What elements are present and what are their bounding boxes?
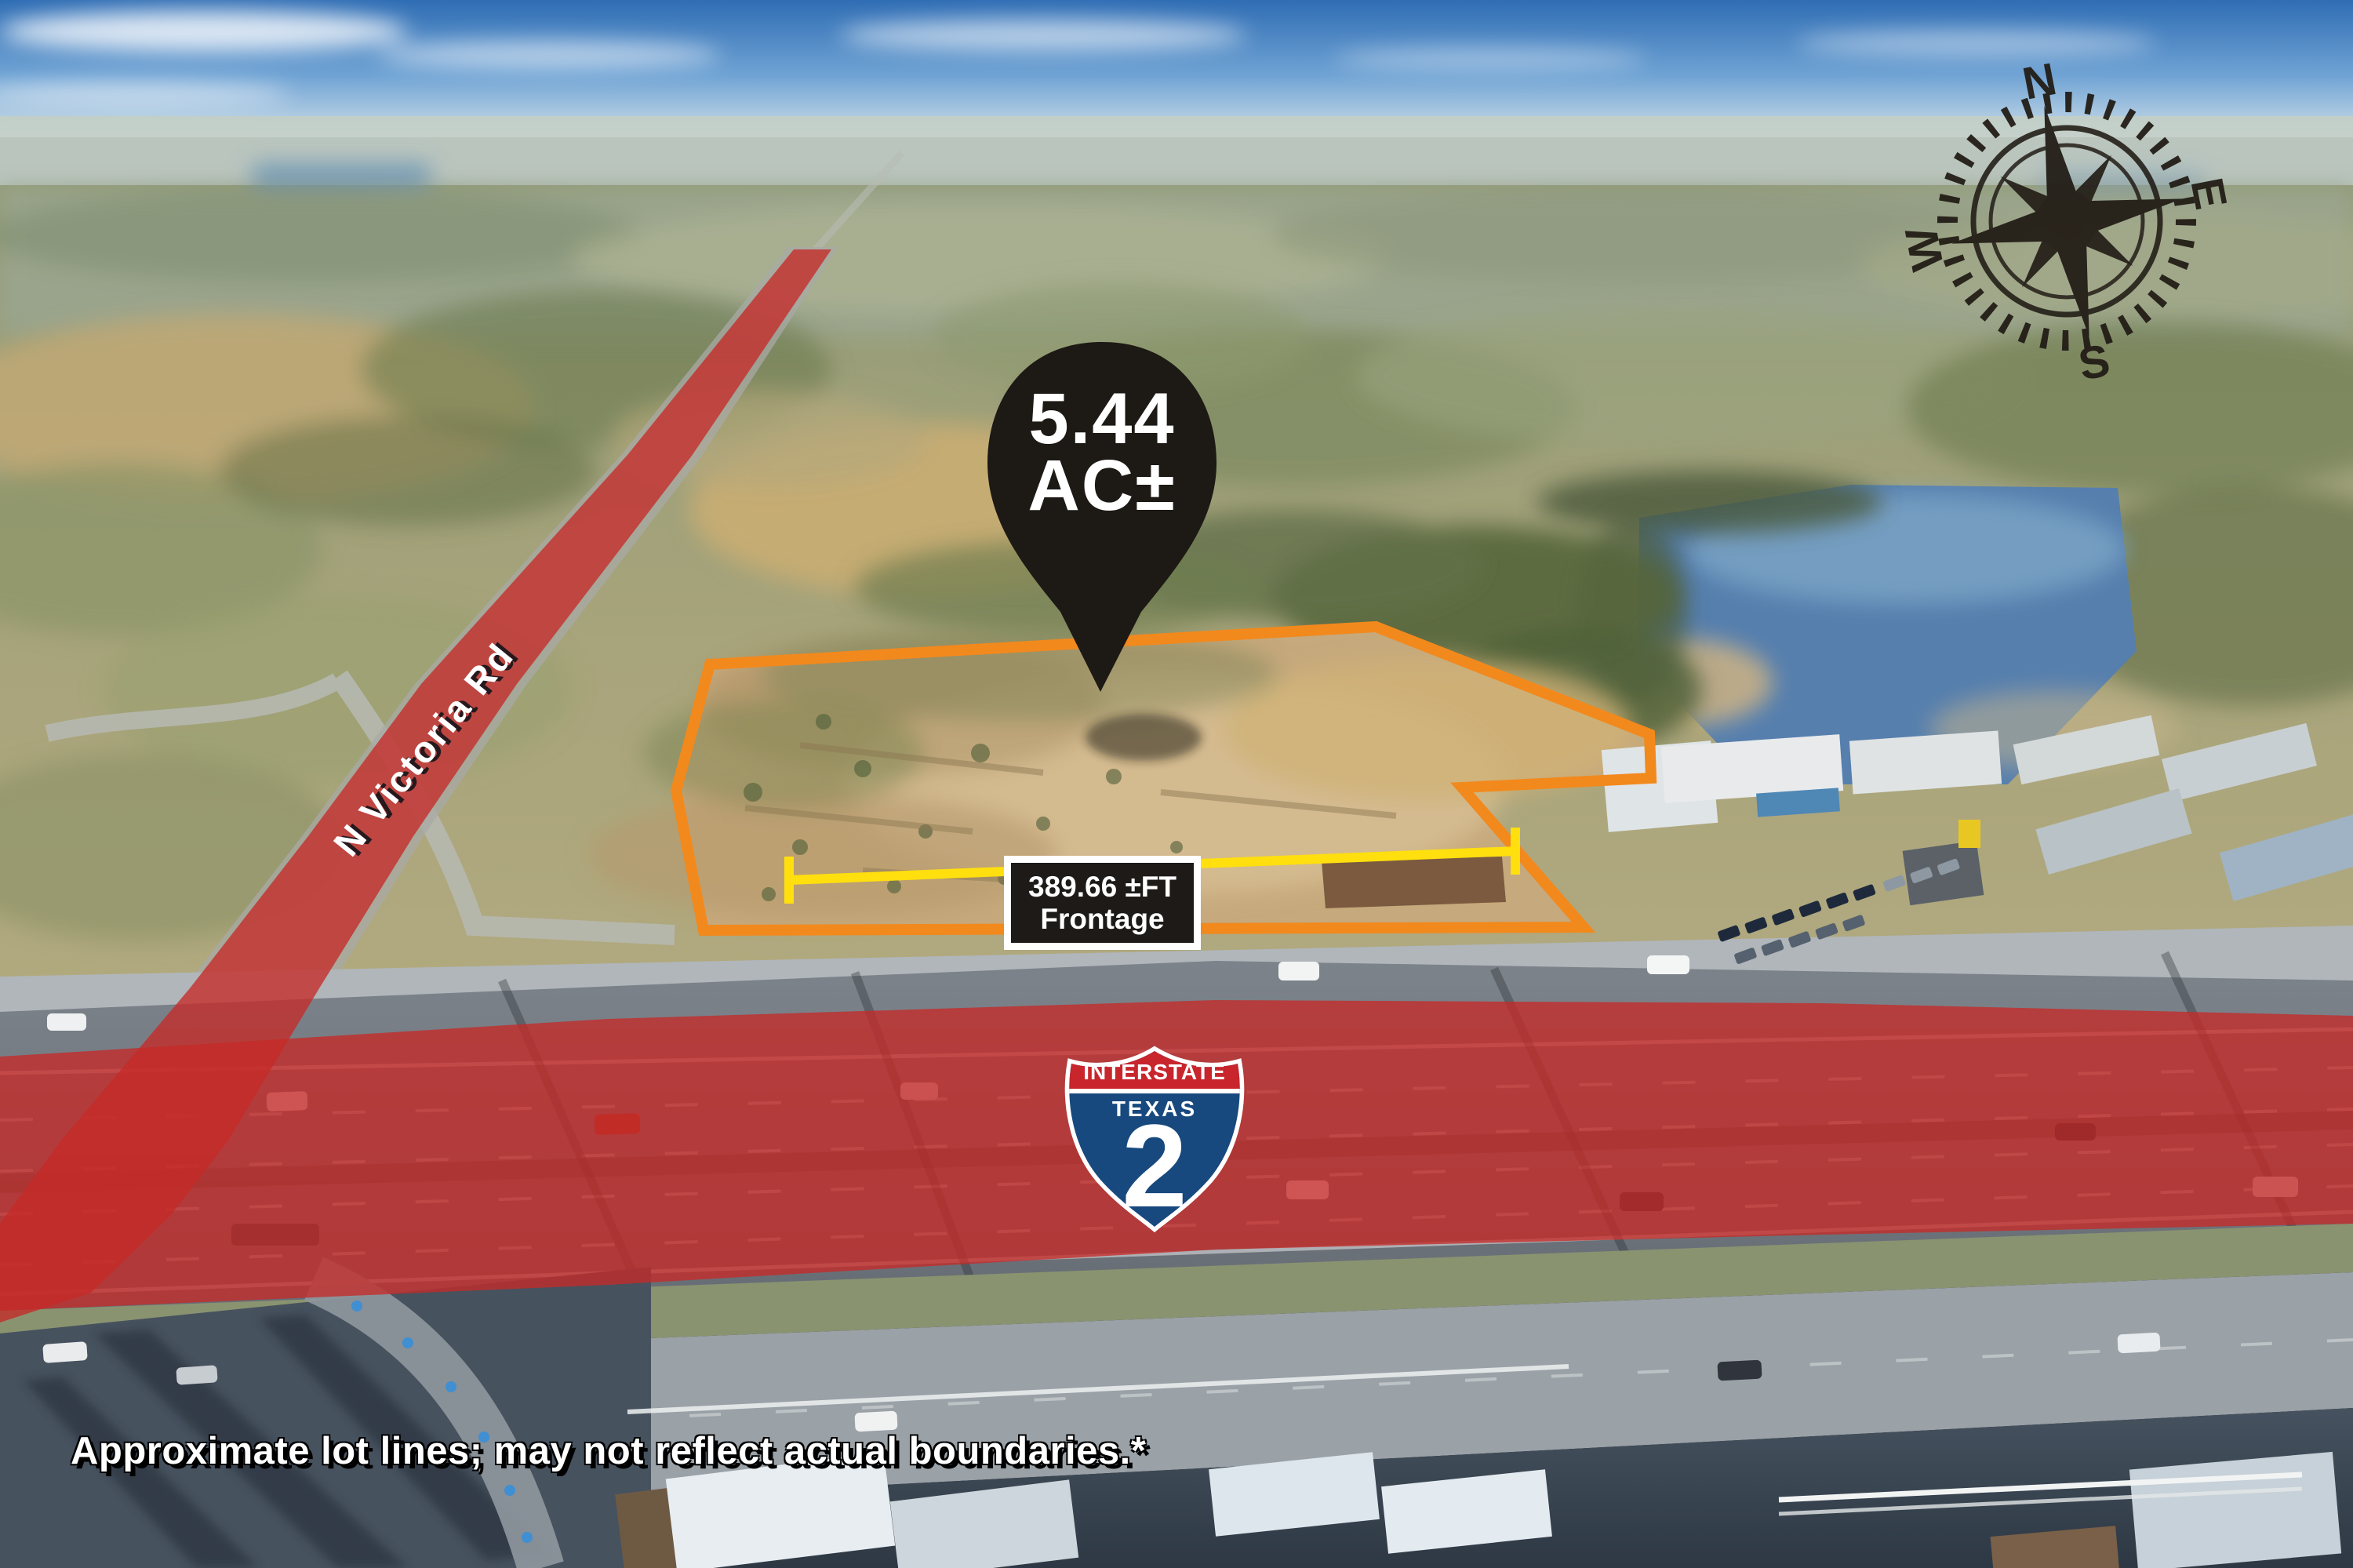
lot-area-label: 5.44 AC± [987,386,1217,518]
lot-area-unit: AC± [987,453,1217,519]
frontage-measurement: 389.66 ±FT [1028,871,1176,903]
shield-top-text: INTERSTATE [1083,1060,1226,1084]
aerial-listing-image: 5.44 AC± 389.66 ±FT Frontage N Victoria … [0,0,2353,1568]
frontage-label: 389.66 ±FT Frontage [1004,856,1201,950]
lot-area-value: 5.44 [987,386,1217,453]
disclaimer-text: Approximate lot lines; may not reflect a… [71,1429,1146,1473]
frontage-caption: Frontage [1040,903,1164,935]
shield-route-number: 2 [1122,1100,1187,1231]
compass-letter-w: W [1896,223,1954,275]
